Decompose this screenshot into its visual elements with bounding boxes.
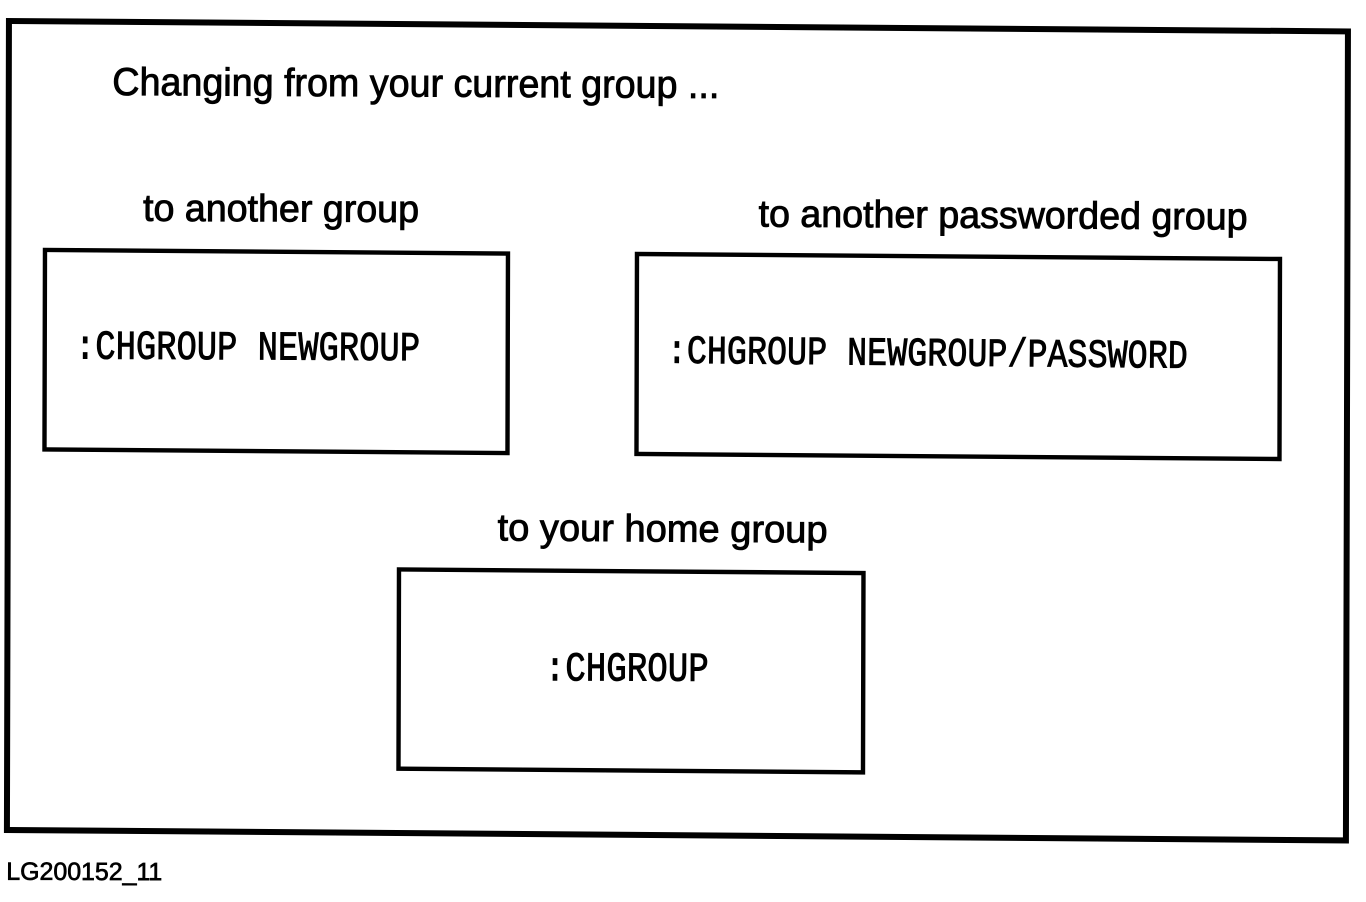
svg-text::CHGROUP NEWGROUP/PASSWORD: :CHGROUP NEWGROUP/PASSWORD [667,331,1188,381]
svg-text:to another passworded group: to another passworded group [758,194,1247,239]
svg-text:to another group: to another group [143,188,419,231]
svg-text::CHGROUP NEWGROUP: :CHGROUP NEWGROUP [75,326,420,374]
svg-text::CHGROUP: :CHGROUP [545,647,709,693]
svg-text:Changing from your current gro: Changing from your current group ... [112,61,719,107]
svg-text:LG200152_11: LG200152_11 [6,858,162,887]
svg-text:to your home group: to your home group [497,507,827,551]
